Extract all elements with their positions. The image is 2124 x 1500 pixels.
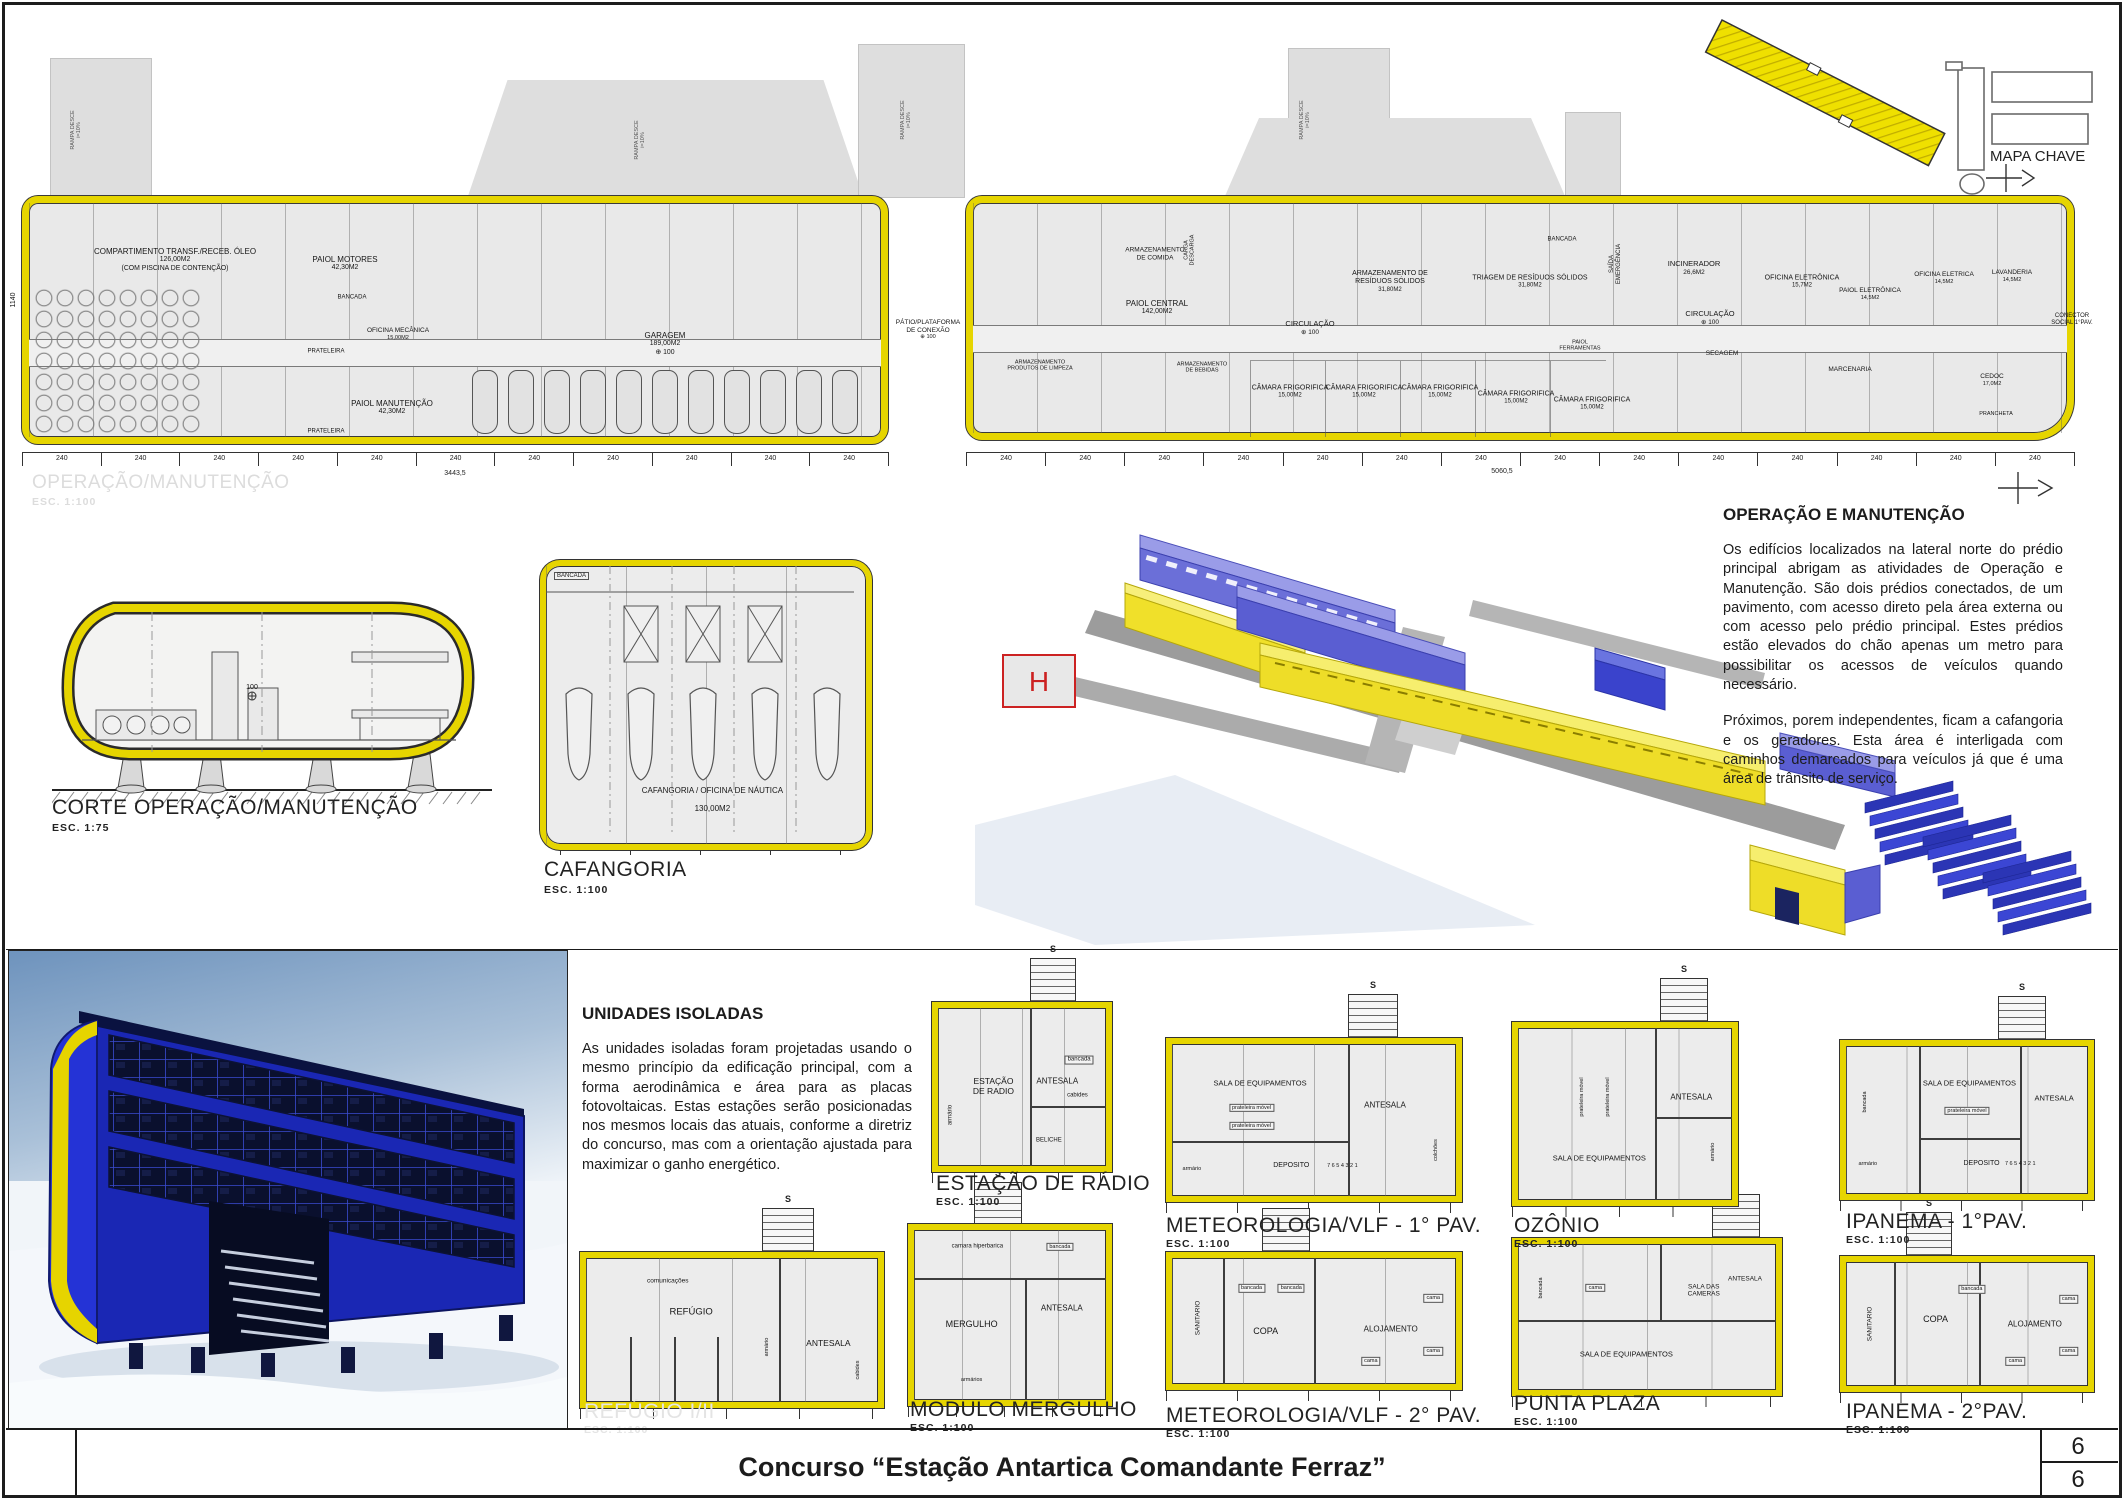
stair: S bbox=[762, 1208, 814, 1256]
column-grid bbox=[938, 1008, 1106, 1166]
dimension-cell: 240 bbox=[1837, 453, 1916, 466]
dimension-row-east: 2402402402402402402402402402402402402402… bbox=[966, 452, 2075, 466]
unit-plan-scale: ESC. 1:100 bbox=[1166, 1238, 1230, 1250]
room-area: 17,0M2 bbox=[1980, 381, 2003, 388]
unit-room-label: SALA DAS CAMERAS bbox=[1688, 1283, 1720, 1298]
unit-room-label: DEPOSITO bbox=[1963, 1160, 1999, 1168]
room-name: GARAGEM bbox=[645, 331, 686, 340]
unit-room-label: ALOJAMENTO bbox=[2008, 1319, 2062, 1328]
unit-room-label: cama bbox=[1586, 1284, 1605, 1292]
dimension-cell: 240 bbox=[1203, 453, 1282, 466]
dimension-cell: 240 bbox=[652, 453, 731, 466]
room-name: CIRCULAÇÃO bbox=[1685, 310, 1734, 319]
room-label: PRATELEIRA bbox=[308, 428, 345, 435]
vehicle-outline bbox=[760, 370, 786, 434]
ramp-label: RAMPA DESCE i=10% bbox=[634, 120, 646, 159]
unit-room-label: bancada bbox=[1065, 1056, 1094, 1065]
room-area: 14,5M2 bbox=[1839, 295, 1901, 302]
ramp-label: RAMPA DESCE i=10% bbox=[70, 110, 82, 149]
unit-room-label: ALOJAMENTO bbox=[1364, 1324, 1418, 1333]
unit-room-label: bancada bbox=[1278, 1284, 1305, 1292]
stair: S bbox=[1998, 996, 2046, 1044]
unit-room-label: comunicações bbox=[647, 1277, 689, 1284]
dimension-total-west: 3443,5 bbox=[444, 470, 465, 477]
sheet-title: Concurso “Estação Antartica Comandante F… bbox=[0, 1452, 2124, 1483]
exterior-render-photo bbox=[8, 950, 568, 1430]
unit-room-label: cama bbox=[1424, 1347, 1443, 1355]
room-name: PAIOL MANUTENÇÃO bbox=[351, 399, 433, 408]
dimension-cell: 240 bbox=[1283, 453, 1362, 466]
room-name: ARMAZENAMENTO PRODUTOS DE LIMPEZA bbox=[1007, 360, 1072, 373]
unit-room-label: ANTESALA bbox=[1728, 1275, 1762, 1282]
ramp-label: RAMPA DESCE i=10% bbox=[900, 100, 912, 139]
room-area: ⊕ 100 bbox=[896, 334, 960, 341]
room-label: CÂMARA FRIGORIFICA15,00M2 bbox=[1252, 384, 1329, 399]
partition-wall bbox=[1223, 1258, 1225, 1384]
partition-wall bbox=[1979, 1262, 1981, 1386]
unit-room-label: armário bbox=[764, 1338, 770, 1357]
unit-room-label: armário bbox=[1710, 1143, 1716, 1162]
room-label: PRATELEIRA bbox=[308, 348, 345, 355]
unit-room-label: SANITARIO bbox=[1866, 1307, 1873, 1342]
dimension-cell: 240 bbox=[809, 453, 888, 466]
stair-direction-label: S bbox=[1681, 964, 1687, 974]
unit-room-label: ANTESALA bbox=[1670, 1092, 1712, 1101]
room-area: 15,00M2 bbox=[1478, 399, 1555, 406]
room-label: CIRCULAÇÃO⊕ 100 bbox=[1285, 320, 1334, 336]
room-area: ⊕ 100 bbox=[1285, 329, 1334, 337]
dimension-row-west: 240240240240240240240240240240240 bbox=[22, 452, 889, 466]
unit-plan-title: METEOROLOGIA/VLF - 2° PAV. bbox=[1166, 1404, 1481, 1428]
unit-plan-ozonio: prateleira móvelprateleira móvelANTESALA… bbox=[1512, 1022, 1738, 1206]
operacao-title: OPERAÇÃO E MANUTENÇÃO bbox=[1723, 505, 2063, 525]
unit-room-label: cama bbox=[2059, 1295, 2078, 1303]
unit-plan-title: METEOROLOGIA/VLF - 1° PAV. bbox=[1166, 1214, 1481, 1238]
column-grid bbox=[1518, 1028, 1732, 1200]
unit-plan-title: IPANEMA - 2°PAV. bbox=[1846, 1400, 2027, 1424]
room-name: CÂMARA FRIGORIFICA bbox=[1478, 390, 1555, 398]
dimension-cell: 240 bbox=[1362, 453, 1441, 466]
unit-room-label: ANTESALA bbox=[1364, 1100, 1406, 1109]
partition-wall bbox=[1348, 1044, 1350, 1196]
section-scale: ESC. 1:75 bbox=[52, 822, 109, 834]
oil-drums-pattern bbox=[34, 288, 202, 434]
room-label: SAÍDA EMERGÊNCIA bbox=[1609, 244, 1623, 284]
dimension-cell: 240 bbox=[966, 453, 1045, 466]
partition-wall bbox=[630, 1337, 632, 1402]
unit-room-label: cama bbox=[2006, 1357, 2025, 1365]
dimension-cell: 240 bbox=[1995, 453, 2074, 466]
dimension-cell: 240 bbox=[1045, 453, 1124, 466]
unit-room-label: BELICHE bbox=[1036, 1137, 1062, 1144]
unit-plan-title: IPANEMA - 1°PAV. bbox=[1846, 1210, 2027, 1234]
partition-wall bbox=[1655, 1028, 1657, 1200]
room-label: CEDOC17,0M2 bbox=[1980, 373, 2003, 387]
room-label: SECAGEM bbox=[1706, 350, 1739, 358]
dimension-cell: 240 bbox=[1757, 453, 1836, 466]
room-area: 15,00M2 bbox=[1326, 393, 1403, 400]
unit-room-label: MERGULHO bbox=[946, 1318, 998, 1328]
section-cut-arrow-icon bbox=[1992, 468, 2062, 508]
room-area: 31,80M2 bbox=[1352, 287, 1428, 294]
dimension-cell: 240 bbox=[416, 453, 495, 466]
partition-wall bbox=[1030, 1106, 1106, 1108]
room-area: 189,00M2 ⊕ 100 bbox=[645, 341, 686, 357]
room-name: LAVANDERIA bbox=[1992, 269, 2032, 277]
cafangoria-title: CAFANGORIA bbox=[544, 858, 687, 882]
column-grid bbox=[1846, 1046, 2088, 1194]
room-area: 42,30M2 bbox=[312, 265, 377, 273]
room-label: OFICINA MECÂNICA15,00M2 bbox=[367, 327, 429, 341]
unit-room-label: bancada bbox=[1958, 1285, 1985, 1293]
room-area: 42,30M2 bbox=[351, 409, 433, 417]
room-name: ARMAZENAMENTO DE BEBIDAS bbox=[1177, 362, 1227, 375]
room-label: TRIAGEM DE RESÍDUOS SÓLIDOS31,80M2 bbox=[1472, 274, 1587, 289]
dimension-cell: 240 bbox=[179, 453, 258, 466]
operacao-paragraph-2: Próximos, porem independentes, ficam a c… bbox=[1723, 712, 2063, 789]
vehicle-outline bbox=[832, 370, 858, 434]
room-name: CÂMARA FRIGORIFICA bbox=[1252, 384, 1329, 392]
unit-room-label: camara hiperbarica bbox=[952, 1244, 1003, 1251]
unidades-paragraph-1: As unidades isoladas foram projetadas us… bbox=[582, 1040, 912, 1175]
room-name: OFICINA ELETRICA bbox=[1914, 271, 1974, 279]
room-area: 14,5M2 bbox=[1992, 277, 2032, 284]
room-label: ARMAZENAMENTO DE RESÍDUOS SÓLIDOS31,80M2 bbox=[1352, 270, 1428, 294]
unit-room-label: SALA DE EQUIPAMENTOS bbox=[1923, 1080, 2016, 1089]
room-label: PAIOL MANUTENÇÃO42,30M2 bbox=[351, 399, 433, 417]
unit-room-label: cabides bbox=[854, 1361, 860, 1380]
room-name: CONECTOR SOCIAL 1°PAV. bbox=[2051, 313, 2092, 327]
room-name: PRANCHETA bbox=[1979, 411, 2013, 417]
vehicle-outline bbox=[544, 370, 570, 434]
vehicle-outline bbox=[616, 370, 642, 434]
room-label: PÁTIO/PLATAFORMA DE CONEXÃO⊕ 100 bbox=[896, 319, 960, 341]
room-name: INCINERADOR bbox=[1668, 260, 1721, 269]
room-name: OFICINA MECÂNICA bbox=[367, 327, 429, 335]
stair: S bbox=[1030, 958, 1076, 1006]
room-area: ⊕ 100 bbox=[1685, 319, 1734, 327]
unit-plan-punta-plaza: bancadaSALA DAS CAMERASANTESALASALA DE E… bbox=[1512, 1238, 1782, 1396]
cafangoria-room-label: CAFANGORIA / OFICINA DE NÁUTICA 130,00M2 bbox=[642, 777, 783, 823]
room-area: 31,80M2 bbox=[1472, 283, 1587, 290]
room-name: PAIOL ELETRÔNICA bbox=[1839, 287, 1901, 295]
room-name: CIRCULAÇÃO bbox=[1285, 320, 1334, 329]
page-number-top: 6 bbox=[2040, 1433, 2116, 1461]
bench-label: BANCADA bbox=[554, 572, 589, 580]
unit-plan-scale: ESC. 1:100 bbox=[584, 1424, 648, 1436]
unit-room-label: cama bbox=[2059, 1347, 2078, 1355]
partition-wall bbox=[779, 1258, 781, 1402]
operacao-paragraph-1: Os edifícios localizados na lateral nort… bbox=[1723, 541, 2063, 695]
room-name: OFICINA ELETRÔNICA bbox=[1765, 274, 1840, 282]
key-map-label: MAPA CHAVE bbox=[1990, 148, 2085, 165]
unit-plan-meteorologia-vlf-2: SANITARIOCOPAbancadabancadaALOJAMENTOcam… bbox=[1166, 1252, 1462, 1390]
dimension-height: 1140 bbox=[10, 292, 18, 307]
page-number-bottom: 6 bbox=[2040, 1466, 2116, 1494]
unit-plan-scale: ESC. 1:100 bbox=[1514, 1416, 1578, 1428]
room-label: CÂMARA FRIGORIFICA15,00M2 bbox=[1554, 396, 1631, 411]
room-label: OFICINA ELETRICA14,5M2 bbox=[1914, 271, 1974, 285]
stair-direction-label: S bbox=[1370, 980, 1376, 990]
section-title: CORTE OPERAÇÃO/MANUTENÇÃO bbox=[52, 796, 418, 820]
partition-wall bbox=[1660, 1244, 1662, 1320]
unit-plan-ipanema-1: bancadaSALA DE EQUIPAMENTOSprateleira mó… bbox=[1840, 1040, 2094, 1200]
unit-room-label: SALA DE EQUIPAMENTOS bbox=[1580, 1351, 1673, 1360]
room-label: GARAGEM189,00M2 ⊕ 100 bbox=[645, 331, 686, 357]
vehicle-outline bbox=[724, 370, 750, 434]
unit-room-label: prateleira móvel bbox=[1579, 1077, 1585, 1116]
partition-wall bbox=[1518, 1320, 1776, 1322]
unidades-title: UNIDADES ISOLADAS bbox=[582, 1004, 912, 1024]
dimension-cell: 240 bbox=[258, 453, 337, 466]
room-name: ARMAZENAMENTO DE COMIDA bbox=[1125, 246, 1184, 261]
roof-silhouette bbox=[468, 80, 863, 196]
room-label: PAIOL CENTRAL142,00M2 bbox=[1126, 299, 1188, 317]
vehicle-outline bbox=[580, 370, 606, 434]
room-label: ARMAZENAMENTO DE BEBIDAS bbox=[1177, 362, 1227, 375]
unit-room-label: cama bbox=[1424, 1294, 1443, 1302]
unit-plan-meteorologia-vlf-1: SALA DE EQUIPAMENTOSprateleira móvelprat… bbox=[1166, 1038, 1462, 1202]
room-label: LAVANDERIA14,5M2 bbox=[1992, 269, 2032, 283]
unit-room-label: ANTESALA bbox=[2035, 1095, 2074, 1104]
dimension-cell: 240 bbox=[731, 453, 810, 466]
partition-wall bbox=[1314, 1258, 1316, 1384]
unit-room-label: prateleira móvel bbox=[1229, 1104, 1274, 1112]
tick-bar bbox=[1166, 1390, 1451, 1401]
room-label: INCINERADOR26,6M2 bbox=[1668, 260, 1721, 276]
room-label: PAIOL FERRAMENTAS bbox=[1559, 340, 1600, 353]
unit-room-label: COPA bbox=[1253, 1326, 1278, 1336]
unit-room-label: armário bbox=[1183, 1165, 1202, 1171]
unit-room-label: bancada bbox=[1538, 1277, 1544, 1298]
room-label: CARGA DESCARGA bbox=[1184, 235, 1197, 266]
room-name: CÂMARA FRIGORIFICA bbox=[1554, 396, 1631, 404]
room-name: BANCADA bbox=[1547, 236, 1576, 243]
cafangoria-plan: BANCADA CAFANGORIA / OFICINA DE NÁUTICA … bbox=[540, 560, 872, 850]
room-name: BANCADA bbox=[337, 294, 366, 301]
cafangoria-scale: ESC. 1:100 bbox=[544, 884, 608, 896]
room-name: PRATELEIRA bbox=[308, 428, 345, 435]
unit-room-label: ANTESALA bbox=[806, 1340, 850, 1350]
room-name: CÂMARA FRIGORIFICA bbox=[1326, 384, 1403, 392]
room-name: ARMAZENAMENTO DE RESÍDUOS SÓLIDOS bbox=[1352, 270, 1428, 287]
unit-plan-title: OZÔNIO bbox=[1514, 1214, 1600, 1238]
unit-plan-scale: ESC. 1:100 bbox=[936, 1196, 1000, 1208]
partition-wall bbox=[1919, 1138, 2021, 1140]
room-label: ARMAZENAMENTO PRODUTOS DE LIMPEZA bbox=[1007, 360, 1072, 373]
room-label: BANCADA bbox=[1547, 236, 1576, 243]
stair-direction-label: S bbox=[785, 1194, 791, 1204]
vehicle-outline bbox=[688, 370, 714, 434]
unit-room-label: bancada bbox=[1238, 1284, 1265, 1292]
room-area: 26,6M2 bbox=[1668, 269, 1721, 277]
column-grid bbox=[1518, 1244, 1776, 1390]
unit-plan-scale: ESC. 1:100 bbox=[1846, 1424, 1910, 1436]
dimension-cell: 240 bbox=[1916, 453, 1995, 466]
unit-room-label: COPA bbox=[1923, 1314, 1948, 1324]
room-area: 15,00M2 bbox=[1252, 393, 1329, 400]
unit-plan-title: ESTAÇÃO DE RÁDIO bbox=[936, 1172, 1150, 1196]
room-name: CÂMARA FRIGORIFICA bbox=[1402, 384, 1479, 392]
partition-wall bbox=[1919, 1046, 1921, 1194]
titlebar-top-line bbox=[6, 1428, 2118, 1430]
section-drawing bbox=[52, 592, 492, 817]
key-map-graphic bbox=[1700, 6, 2110, 216]
room-name: CEDOC bbox=[1980, 373, 2003, 381]
unit-plan-refugio: comunicaçõesREFÚGIOarmárioANTESALAcabide… bbox=[580, 1252, 884, 1408]
unit-plan-ipanema-2: SANITARIOCOPAbancadaALOJAMENTOcamacamaca… bbox=[1840, 1256, 2094, 1392]
north-arrow-icon bbox=[1986, 164, 2034, 192]
unit-room-label: prateleira móvel bbox=[1229, 1122, 1274, 1130]
unit-room-label: prateleira móvel bbox=[1605, 1077, 1611, 1116]
room-area: 14,5M2 bbox=[1914, 279, 1974, 286]
room-area: 142,00M2 bbox=[1126, 309, 1188, 317]
stair-direction-label: S bbox=[2019, 982, 2025, 992]
room-label: CÂMARA FRIGORIFICA15,00M2 bbox=[1478, 390, 1555, 405]
unit-room-label: DEPOSITO bbox=[1273, 1162, 1309, 1170]
dimension-cell: 240 bbox=[337, 453, 416, 466]
unit-room-label: armário bbox=[948, 1105, 955, 1125]
unit-room-label: ESTAÇÃO DE RADIO bbox=[973, 1077, 1014, 1097]
room-label: CIRCULAÇÃO⊕ 100 bbox=[1685, 310, 1734, 326]
room-name: SECAGEM bbox=[1706, 350, 1739, 358]
unit-room-label: ANTESALA bbox=[1036, 1076, 1078, 1085]
unit-plan-estacao-radio: ESTAÇÃO DE RADIOANTESALAbancadacabidesBE… bbox=[932, 1002, 1112, 1172]
presentation-board: COMPARTIMENTO TRANSF./RECEB. ÓLEO126,00M… bbox=[0, 0, 2124, 1500]
room-name: PAIOL FERRAMENTAS bbox=[1559, 340, 1600, 353]
unit-room-label: SALA DE EQUIPAMENTOS bbox=[1213, 1079, 1306, 1088]
column-grid bbox=[914, 1230, 1106, 1400]
partition-wall bbox=[2020, 1046, 2022, 1194]
helipad-letter: H bbox=[1029, 666, 1049, 697]
unit-room-label: SANITARIO bbox=[1194, 1301, 1201, 1336]
partition-wall bbox=[1025, 1278, 1027, 1400]
dimension-cell: 240 bbox=[22, 453, 101, 466]
dimension-cell: 240 bbox=[101, 453, 180, 466]
room-label: PRANCHETA bbox=[1979, 411, 2013, 417]
room-area: 15,00M2 bbox=[367, 335, 429, 342]
room-label: OFICINA ELETRÔNICA15,7M2 bbox=[1765, 274, 1840, 289]
stair: S bbox=[1660, 978, 1708, 1026]
room-name: PÁTIO/PLATAFORMA DE CONEXÃO bbox=[896, 319, 960, 334]
dimension-cell: 240 bbox=[1520, 453, 1599, 466]
stair: S bbox=[1348, 994, 1398, 1042]
room-name: CARGA DESCARGA bbox=[1184, 235, 1197, 266]
roof-silhouette bbox=[1225, 118, 1565, 196]
unit-room-label: armários bbox=[961, 1376, 982, 1382]
room-label: ARMAZENAMENTO DE COMIDA bbox=[1125, 246, 1184, 261]
corridor bbox=[973, 325, 2067, 353]
dimension-cell: 240 bbox=[494, 453, 573, 466]
partition-wall bbox=[914, 1278, 1106, 1280]
vehicle-outline bbox=[796, 370, 822, 434]
room-name: COMPARTIMENTO TRANSF./RECEB. ÓLEO bbox=[94, 247, 256, 256]
roof-silhouette bbox=[50, 58, 152, 198]
dimension-cell: 240 bbox=[1678, 453, 1757, 466]
unit-room-label: ANTESALA bbox=[1041, 1304, 1083, 1313]
room-label: CÂMARA FRIGORIFICA15,00M2 bbox=[1402, 384, 1479, 399]
unit-room-label: SALA DE EQUIPAMENTOS bbox=[1553, 1154, 1646, 1163]
unit-plan-modulo-mergulho: camara hiperbaricabancadaMERGULHOANTESAL… bbox=[908, 1224, 1112, 1406]
vehicle-outline bbox=[472, 370, 498, 434]
unit-room-label: colchões bbox=[1433, 1140, 1439, 1162]
unit-room-label: REFÚGIO bbox=[669, 1307, 712, 1318]
partition-wall bbox=[1655, 1117, 1732, 1119]
ramp-label: RAMPA DESCE i=10% bbox=[1299, 100, 1311, 139]
dimension-cell: 240 bbox=[1124, 453, 1203, 466]
dimension-total-east: 5060,5 bbox=[1491, 468, 1512, 475]
room-name: TRIAGEM DE RESÍDUOS SÓLIDOS bbox=[1472, 274, 1587, 282]
partition-wall bbox=[1030, 1008, 1032, 1166]
unit-plan-scale: ESC. 1:100 bbox=[1846, 1234, 1910, 1246]
main-plan-watermark-scale: ESC. 1:100 bbox=[32, 496, 96, 508]
room-area: 126,00M2 (COM PISCINA DE CONTENÇÃO) bbox=[94, 257, 256, 273]
unit-plan-title: REFÚGIO I/II bbox=[584, 1400, 715, 1424]
roof-silhouette bbox=[1565, 112, 1621, 198]
room-area: 15,7M2 bbox=[1765, 283, 1840, 290]
room-name: PRATELEIRA bbox=[308, 348, 345, 355]
room-label: CÂMARA FRIGORIFICA15,00M2 bbox=[1326, 384, 1403, 399]
main-plan-watermark-title: OPERAÇÃO/MANUTENÇÃO bbox=[32, 472, 290, 494]
unit-plan-scale: ESC. 1:100 bbox=[1514, 1238, 1578, 1250]
room-name: MARCENARIA bbox=[1828, 366, 1871, 374]
unit-room-label: 7 6 5 4 3 2 1 bbox=[1327, 1162, 1358, 1168]
partition-wall bbox=[717, 1337, 719, 1402]
unit-room-label: cama bbox=[1361, 1357, 1380, 1365]
room-label: PAIOL ELETRÔNICA14,5M2 bbox=[1839, 287, 1901, 301]
room-label: COMPARTIMENTO TRANSF./RECEB. ÓLEO126,00M… bbox=[94, 247, 256, 273]
dimension-cell: 240 bbox=[1599, 453, 1678, 466]
section-level-marker: 100 bbox=[246, 684, 258, 692]
vehicle-outline bbox=[508, 370, 534, 434]
unit-room-label: bancada bbox=[1046, 1243, 1073, 1251]
unit-room-label: armário bbox=[1858, 1161, 1877, 1167]
room-area: 130,00M2 bbox=[642, 804, 783, 813]
column-grid bbox=[1172, 1044, 1456, 1196]
partition-wall bbox=[1894, 1262, 1896, 1386]
unit-room-label: cabides bbox=[1067, 1093, 1088, 1100]
unit-plan-title: MODULO MERGULHO bbox=[910, 1398, 1137, 1422]
dimension-cell: 240 bbox=[573, 453, 652, 466]
dimension-cell: 240 bbox=[1441, 453, 1520, 466]
room-label: MARCENARIA bbox=[1828, 366, 1871, 374]
unit-room-label: 7 6 5 4 3 2 1 bbox=[2005, 1161, 2036, 1167]
room-area: 15,00M2 bbox=[1402, 393, 1479, 400]
unit-plan-title: PUNTA PLAZA bbox=[1514, 1392, 1660, 1416]
unit-room-label: prateleira móvel bbox=[1944, 1107, 1989, 1115]
room-area: 15,00M2 bbox=[1554, 405, 1631, 412]
room-label: BANCADA bbox=[337, 294, 366, 301]
room-name: SAÍDA EMERGÊNCIA bbox=[1609, 244, 1623, 284]
partition-wall bbox=[1172, 1141, 1348, 1143]
partition-wall bbox=[674, 1337, 676, 1402]
vehicle-outline bbox=[652, 370, 678, 434]
room-label: CONECTOR SOCIAL 1°PAV. bbox=[2051, 313, 2092, 327]
room-name: PAIOL CENTRAL bbox=[1126, 299, 1188, 308]
room-label: PAIOL MOTORES42,30M2 bbox=[312, 255, 377, 273]
unidades-text-block: UNIDADES ISOLADAS As unidades isoladas f… bbox=[582, 1004, 912, 1192]
panel-divider bbox=[6, 949, 2118, 950]
room-name: CAFANGORIA / OFICINA DE NÁUTICA bbox=[642, 786, 783, 795]
operacao-text-block: OPERAÇÃO E MANUTENÇÃO Os edifícios local… bbox=[1723, 505, 2063, 806]
room-name: PAIOL MOTORES bbox=[312, 255, 377, 264]
unit-room-label: bancada bbox=[1862, 1092, 1868, 1113]
